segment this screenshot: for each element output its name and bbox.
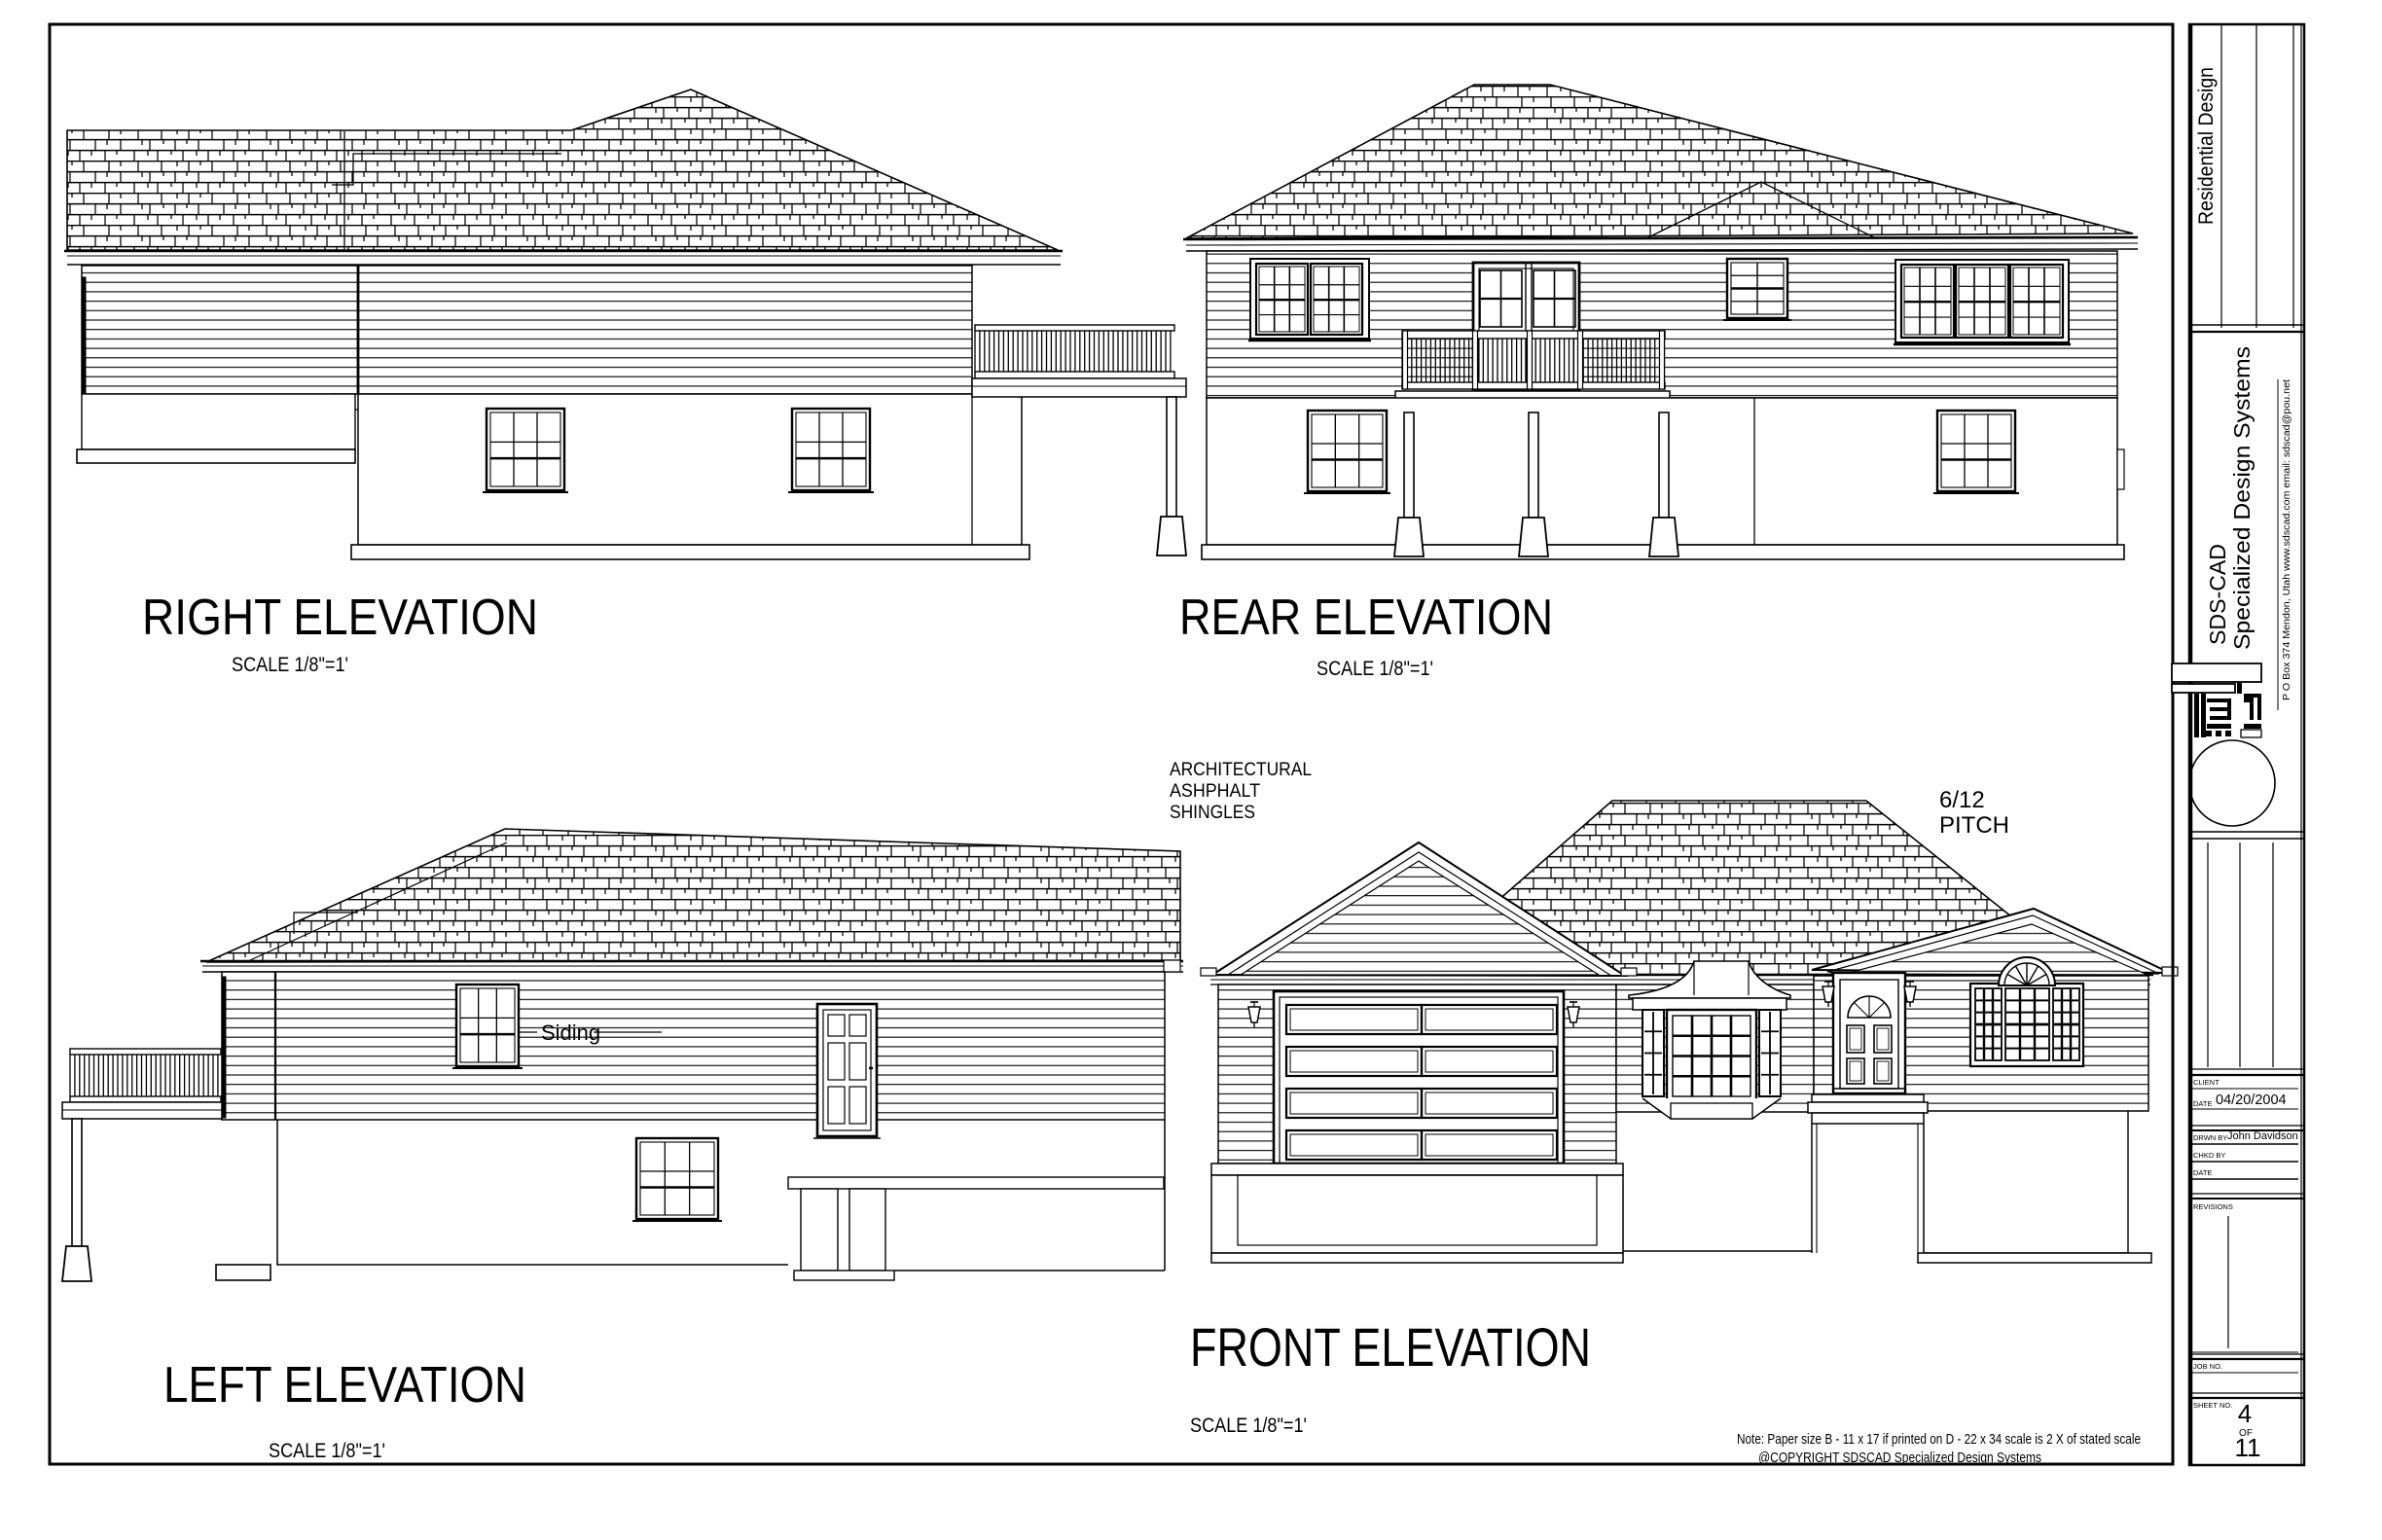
svg-text:REVISIONS: REVISIONS <box>2193 1202 2233 1211</box>
svg-text:ASHPHALT: ASHPHALT <box>1170 781 1260 802</box>
svg-text:SDS-CAD: SDS-CAD <box>2205 544 2230 645</box>
svg-text:CLIENT: CLIENT <box>2193 1078 2220 1087</box>
svg-text:Siding: Siding <box>541 1021 600 1045</box>
svg-text:SCALE 1/8"=1': SCALE 1/8"=1' <box>1317 658 1433 680</box>
svg-text:Specialized Design Systems: Specialized Design Systems <box>2229 346 2255 650</box>
svg-text:REAR ELEVATION: REAR ELEVATION <box>1179 590 1553 646</box>
svg-text:DATE: DATE <box>2193 1168 2212 1177</box>
svg-text:SCALE 1/8"=1': SCALE 1/8"=1' <box>232 654 348 676</box>
svg-text:Note: Paper size B - 11 x 17 i: Note: Paper size B - 11 x 17 if printed … <box>1737 1431 2141 1448</box>
svg-text:11: 11 <box>2235 1433 2261 1462</box>
svg-text:SHEET NO.: SHEET NO. <box>2193 1401 2232 1410</box>
svg-text:ARCHITECTURAL: ARCHITECTURAL <box>1170 760 1312 780</box>
svg-text:CHKD BY: CHKD BY <box>2193 1151 2225 1160</box>
svg-text:SCALE 1/8"=1': SCALE 1/8"=1' <box>1190 1415 1307 1437</box>
svg-text:RIGHT ELEVATION: RIGHT ELEVATION <box>142 590 538 646</box>
svg-text:6/12: 6/12 <box>1939 787 1985 813</box>
svg-text:John Davidson: John Davidson <box>2227 1130 2298 1142</box>
svg-text:FRONT ELEVATION: FRONT ELEVATION <box>1190 1316 1591 1378</box>
svg-text:P O Box 374 Mendon, Utah www: P O Box 374 Mendon, Utah www.sdscad.com … <box>2281 379 2292 700</box>
svg-text:SHINGLES: SHINGLES <box>1170 803 1255 823</box>
svg-text:SCALE 1/8"=1': SCALE 1/8"=1' <box>269 1440 385 1462</box>
svg-text:PITCH: PITCH <box>1939 812 2009 839</box>
svg-text:DRWN BY: DRWN BY <box>2193 1133 2227 1142</box>
svg-text:LEFT ELEVATION: LEFT ELEVATION <box>163 1357 526 1414</box>
svg-text:DATE: DATE <box>2193 1099 2212 1108</box>
svg-text:04/20/2004: 04/20/2004 <box>2216 1092 2287 1108</box>
svg-text:Residential Design: Residential Design <box>2195 67 2218 225</box>
svg-text:4: 4 <box>2238 1399 2252 1428</box>
svg-text:JOB NO.: JOB NO. <box>2193 1362 2222 1371</box>
